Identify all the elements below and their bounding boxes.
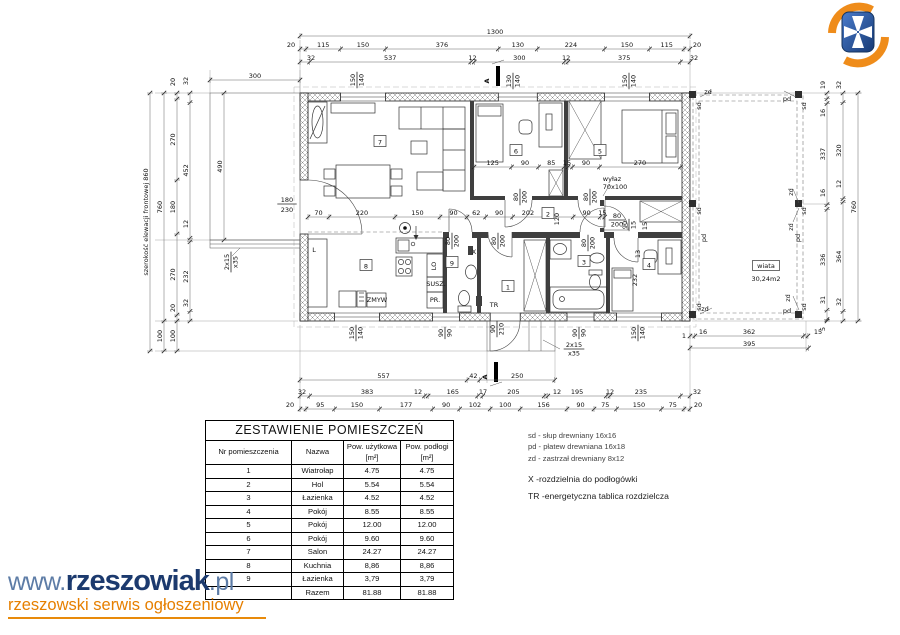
washbasin-bath9 [466,265,477,279]
table-row: 1Wiatrołap4.754.75 [206,465,454,479]
svg-text:180: 180 [281,196,293,204]
svg-text:2x15: 2x15 [566,341,582,349]
dim-label: 165 [447,388,459,396]
table-cell: 4.52 [344,492,401,506]
table-cell: 1 [206,465,292,479]
dim-label: 42 [469,372,477,380]
plan-label: A [481,374,489,379]
dim-label: 5 [819,327,827,331]
dim-label: 12 [182,220,190,228]
size-fraction-label: 80200 [582,189,598,205]
dim-label: 300 [249,72,261,80]
dim-label: 32 [835,298,843,306]
dim-label: 125 [487,159,499,167]
rzeszowiak-shield-logo [832,7,885,64]
kitchen-counter-left [308,239,327,307]
extension-lines [155,40,862,412]
site-branding: www.rzeszowiak.pl rzeszowski serwis ogło… [8,565,266,619]
plan-label: zd [701,305,709,313]
dim-label: 150 [351,401,363,409]
svg-text:80: 80 [512,193,520,201]
svg-text:200: 200 [499,235,507,247]
dim-label: 235 [635,388,647,396]
dim-label: 362 [743,328,755,336]
furniture-room4 [612,240,681,311]
dim-label: 90 [582,159,590,167]
dim-label: 490 [216,160,224,172]
carport [689,91,803,319]
table-cell: Razem [292,586,344,600]
bed-room5 [622,110,678,163]
furniture-salon [308,102,465,232]
plan-label: 13 [634,250,642,258]
svg-text:200: 200 [453,235,461,247]
dim-label: 32 [298,388,306,396]
table-row: 2Hol5.545.54 [206,478,454,492]
dim-label: 270 [169,268,177,280]
dim-label: 16 [699,328,707,336]
dim-label: 19 [819,81,827,89]
dim-label: szerokość elewacji frontowej 860 [142,168,150,275]
table-cell: Łazienka [292,573,344,587]
dim-label: 32 [835,81,843,89]
room-number: 1 [506,284,510,292]
table-cell: 5.54 [344,478,401,492]
svg-text:x35: x35 [232,256,240,268]
coffee-table [411,141,427,154]
dim-label: 16 [819,109,827,117]
legend-x-note: X -rozdzielnia do podłogówki [528,474,669,484]
table-cell: 4 [206,505,292,519]
plan-label: PR. [430,296,440,304]
svg-text:140: 140 [357,327,365,339]
table-cell: 12.00 [344,519,401,533]
dim-label: 90 [442,401,450,409]
plan-label: pd [794,234,802,242]
table-cell: 3 [206,492,292,506]
dim-label: 95 [316,401,324,409]
plan-label: 15 [641,222,649,230]
tv-unit [308,102,327,143]
plan-label: pd [783,307,791,315]
dim-label: 15 [563,159,571,167]
table-cell: 5 [206,519,292,533]
table-cell: 6 [206,532,292,546]
dim-label: 12 [562,54,570,62]
dim-label: 12 [835,180,843,188]
dim-label: 452 [182,164,190,176]
table-cell: 12.00 [401,519,454,533]
table-header-cell: Nr pomieszczenia [206,441,292,465]
size-fraction-label: 9090 [571,327,587,339]
table-row: 5Pokój12.0012.00 [206,519,454,533]
plan-label: LO [430,262,438,271]
corner-sofa [399,107,465,191]
svg-text:200: 200 [589,237,597,249]
dim-label: 156 [537,401,549,409]
distribution-board [476,296,482,306]
dim-label: 232 [182,270,190,282]
dim-label: 760 [156,201,164,213]
table-cell: Hol [292,478,344,492]
plan-label: 30,24m2 [751,275,780,283]
plan-label: sd [800,207,808,215]
dim-label: 300 [513,54,525,62]
dim-label: 100 [156,330,164,342]
table-title: ZESTAWIENIE POMIESZCZEŃ [206,421,454,441]
svg-text:2x15: 2x15 [223,254,231,270]
dim-label: 150 [411,209,423,217]
dim-label: 760 [850,201,858,213]
svg-text:80: 80 [490,237,498,245]
windows [335,93,662,321]
dim-label: 75 [669,401,677,409]
dim-label: 90 [495,209,503,217]
size-fraction-label: 90210 [489,321,505,337]
legend-line: zd - zastrzał drewniany 8x12 [528,453,669,464]
size-fraction-label: 2x15x35 [564,341,585,357]
dim-label: 100 [169,330,177,342]
furniture-room5 [622,110,678,163]
plan-label: X [472,248,477,256]
size-fraction-label: 150140 [348,325,364,341]
size-fraction-label: 9090 [437,327,453,339]
dim-label: 537 [384,54,396,62]
plan-label: zd [784,294,792,302]
plan-label: 232 [631,274,639,286]
table-row: 6Pokój9.609.60 [206,532,454,546]
dim-label: 31 [819,296,827,304]
dim-label: 270 [634,159,646,167]
table-header-row: Nr pomieszczeniaNazwaPow. użytkowa [m²]P… [206,441,454,465]
plan-label: pd [783,95,791,103]
svg-text:90: 90 [571,329,579,337]
window-kitchen-bottom [335,313,380,321]
dim-label: 224 [565,41,577,49]
svg-text:140: 140 [639,327,647,339]
dim-label: 270 [169,133,177,145]
plan-label: wiata [757,262,775,270]
legend-wood-notes: sd - słup drewniany 16x16pd - płatew dre… [528,430,669,464]
table-cell: 9.60 [344,532,401,546]
dimensions-layer: 1300201151503761302241501152032537123001… [142,28,861,412]
dim-label: 85 [547,159,555,167]
legend-tr-note: TR -energetyczna tablica rozdzielcza [528,491,669,501]
dim-label: 364 [835,251,843,263]
plan-label: TR [489,301,499,309]
dim-label: 220 [356,209,368,217]
dim-label: 150 [621,41,633,49]
room-number: 5 [598,148,602,156]
dim-label: 32 [182,77,190,85]
svg-text:80: 80 [580,239,588,247]
size-fraction-label: 150140 [349,72,365,88]
dim-label: 320 [835,144,843,156]
svg-text:150: 150 [349,74,357,86]
dim-label: 180 [169,201,177,213]
dim-label: 177 [400,401,412,409]
site-url: www.rzeszowiak.pl [8,577,234,594]
svg-text:80: 80 [444,237,452,245]
dim-label: 395 [743,340,755,348]
dim-label: 20 [169,304,177,312]
svg-text:150: 150 [348,327,356,339]
fixtures-bath3 [550,240,607,312]
drawing-sheet: 1300201151503761302241501152032537123001… [0,0,900,635]
table-cell: Wiatrołap [292,465,344,479]
svg-text:130: 130 [505,75,513,87]
table-cell: 5.54 [401,478,454,492]
dim-label: 150 [633,401,645,409]
dim-label: 205 [507,388,519,396]
size-fraction-label: 80200 [580,235,596,251]
chair-room6 [519,120,532,134]
table-cell: 81.88 [401,586,454,600]
desk-room4 [658,240,681,274]
plan-label: zd [787,223,795,231]
plan-label: 1 [682,332,686,340]
dim-label: 557 [377,372,389,380]
dim-label: 376 [436,41,448,49]
svg-text:15: 15 [630,221,638,229]
room-number: 4 [647,262,651,270]
table-cell: Pokój [292,505,344,519]
dim-label: 195 [571,388,583,396]
dim-label: 90 [576,401,584,409]
plan-label: sd [695,207,703,215]
plan-label: L [312,246,316,254]
wardrobe-room6 [549,170,563,196]
table-cell: 81.88 [344,586,401,600]
table-row: 3Łazienka4.524.52 [206,492,454,506]
table-cell: 4.75 [344,465,401,479]
svg-text:210: 210 [498,323,506,335]
table-cell: 3,79 [344,573,401,587]
table-cell: Łazienka [292,492,344,506]
dim-label: 375 [618,54,630,62]
window-bath3-bottom [567,313,594,321]
dim-label: 336 [819,254,827,266]
dim-label: 20 [286,401,294,409]
table-cell: 3,79 [401,573,454,587]
basin2-bath3 [590,253,604,263]
table-cell: 8.55 [344,505,401,519]
svg-text:140: 140 [514,75,522,87]
size-fraction-label: 9015 [621,219,637,231]
washbasin-bath3 [554,244,567,255]
dim-label: 383 [361,388,373,396]
dim-label: 20 [169,78,177,86]
dim-label: 90 [583,209,591,217]
dim-label: 150 [357,41,369,49]
table-header-cell: Nazwa [292,441,344,465]
room-number: 7 [378,139,382,147]
svg-text:90: 90 [621,221,629,229]
toilet-bath9 [459,291,470,306]
dim-label: 337 [819,148,827,160]
dim-label: 202 [522,209,534,217]
dim-label: 12 [606,388,614,396]
room-number: 8 [364,263,368,271]
dim-label: 100 [499,401,511,409]
dim-label: 15 [598,209,606,217]
dim-label: 115 [661,41,673,49]
table-cell: 4.52 [401,492,454,506]
table-cell: 8,86 [344,559,401,573]
size-fraction-label: 80200 [512,189,528,205]
svg-text:x35: x35 [568,350,580,358]
dim-label: 20 [287,41,295,49]
dim-label: 20 [693,41,701,49]
window-room6-top [498,93,537,101]
legend-line: sd - słup drewniany 16x16 [528,430,669,441]
plan-label: zd [787,188,795,196]
fixtures-bath9 [458,265,477,312]
room-number: 2 [546,211,550,219]
legend: sd - słup drewniany 16x16pd - płatew dre… [528,430,669,501]
table-cell: 8,86 [401,559,454,573]
dim-label: 75 [601,401,609,409]
svg-text:90: 90 [446,329,454,337]
plan-label: sd [695,102,703,110]
dim-label: 16 [819,189,827,197]
window-room5-top [605,93,650,101]
dim-label: 20 [694,401,702,409]
svg-text:150: 150 [630,327,638,339]
dim-label: 17 [479,388,487,396]
legend-line: pd - płatew drewniana 16x18 [528,441,669,452]
dim-label: 32 [693,388,701,396]
window-salon-top [341,93,386,101]
dim-label: 90 [521,159,529,167]
dim-label: 102 [469,401,481,409]
size-fraction-label: 2x15x35 [223,252,239,273]
table-header-cell: Pow. podłogi [m²] [401,441,454,465]
dining-table [324,165,402,198]
site-tagline: rzeszowski serwis ogłoszeniowy [8,596,266,619]
bed-room4 [612,268,633,311]
plan-label: pd [700,234,708,242]
wardrobe-hall [524,240,546,311]
svg-text:140: 140 [358,74,366,86]
plan-label: zd [704,88,712,96]
table-cell: Kuchnia [292,559,344,573]
svg-text:80: 80 [613,212,621,220]
size-fraction-label: 150140 [621,73,637,89]
bathtub [550,287,607,312]
table-cell: 4.75 [401,465,454,479]
svg-text:90: 90 [580,329,588,337]
dim-label: 1300 [487,28,504,36]
dim-label: 32 [690,54,698,62]
room-number: 9 [450,260,454,268]
table-row: 7Salon24.2724.27 [206,546,454,560]
dim-label: 115 [317,41,329,49]
table-cell: Salon [292,546,344,560]
size-fraction-label: 150140 [630,325,646,341]
dim-label: 12 [468,54,476,62]
dim-label: 70 [314,209,322,217]
plan-label: A [483,78,491,83]
plan-label: sd [800,303,808,311]
table-cell: 8.55 [401,505,454,519]
dim-label: 62 [472,209,480,217]
dim-label: 12 [414,388,422,396]
table-cell: 24.27 [401,546,454,560]
svg-text:230: 230 [281,206,293,214]
table-cell: 9.60 [401,532,454,546]
plan-label: wyłaz [603,175,622,183]
svg-text:140: 140 [630,75,638,87]
dim-label: 12 [553,388,561,396]
dim-label: 130 [512,41,524,49]
plan-label: sd [800,102,808,110]
table-row: 4Pokój8.558.55 [206,505,454,519]
svg-text:200: 200 [521,191,529,203]
table-cell: 7 [206,546,292,560]
dim-label: 90 [449,209,457,217]
svg-text:150: 150 [621,75,629,87]
wardrobe-vestibule [640,201,682,222]
table-cell: Pokój [292,519,344,533]
bed-room6 [476,104,503,162]
window-room4-bottom [617,313,662,321]
desk-room6 [539,103,562,147]
table-cell: Pokój [292,532,344,546]
plan-label: SUSZ. [426,280,446,288]
table-cell: 24.27 [344,546,401,560]
svg-text:80: 80 [582,193,590,201]
terrace [210,93,300,256]
size-fraction-label: 130140 [505,73,521,89]
table-header-cell: Pow. użytkowa [m²] [344,441,401,465]
sink [398,240,409,251]
window-bath9-bottom [433,313,460,321]
svg-text:90: 90 [489,325,497,333]
room-number: 3 [582,259,586,267]
dim-label: 32 [307,54,315,62]
sideboard [331,103,375,113]
svg-text:90: 90 [437,329,445,337]
room-number: 6 [514,148,518,156]
dim-label: 32 [182,299,190,307]
plan-label: 70x100 [603,183,628,191]
plan-label: ZMYW [367,296,388,304]
table-cell: 2 [206,478,292,492]
svg-text:200: 200 [591,191,599,203]
dim-label: 250 [511,372,523,380]
